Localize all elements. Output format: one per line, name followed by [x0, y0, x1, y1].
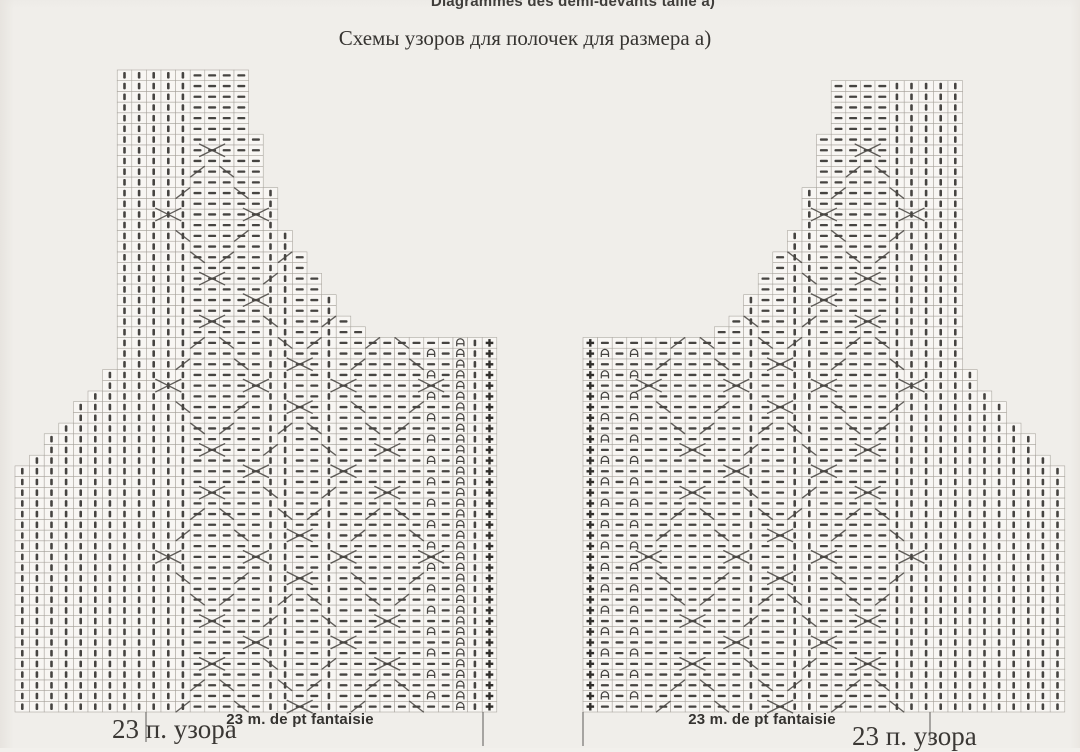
right-chart-repeat-label-russian: 23 п. узора	[852, 721, 977, 752]
right-chart-repeat-label-french: 23 m. de pt fantaisie	[642, 711, 882, 728]
knitting-chart-left-half-front	[15, 70, 497, 746]
left-chart-repeat-label-russian: 23 п. узора	[112, 714, 237, 745]
knitting-charts-canvas	[0, 0, 1080, 748]
chart-grid	[15, 70, 497, 712]
scanned-pattern-page: Diagrammes des demi-devants taille a) Сх…	[0, 0, 1080, 748]
knitting-chart-right-half-front	[583, 81, 1065, 746]
